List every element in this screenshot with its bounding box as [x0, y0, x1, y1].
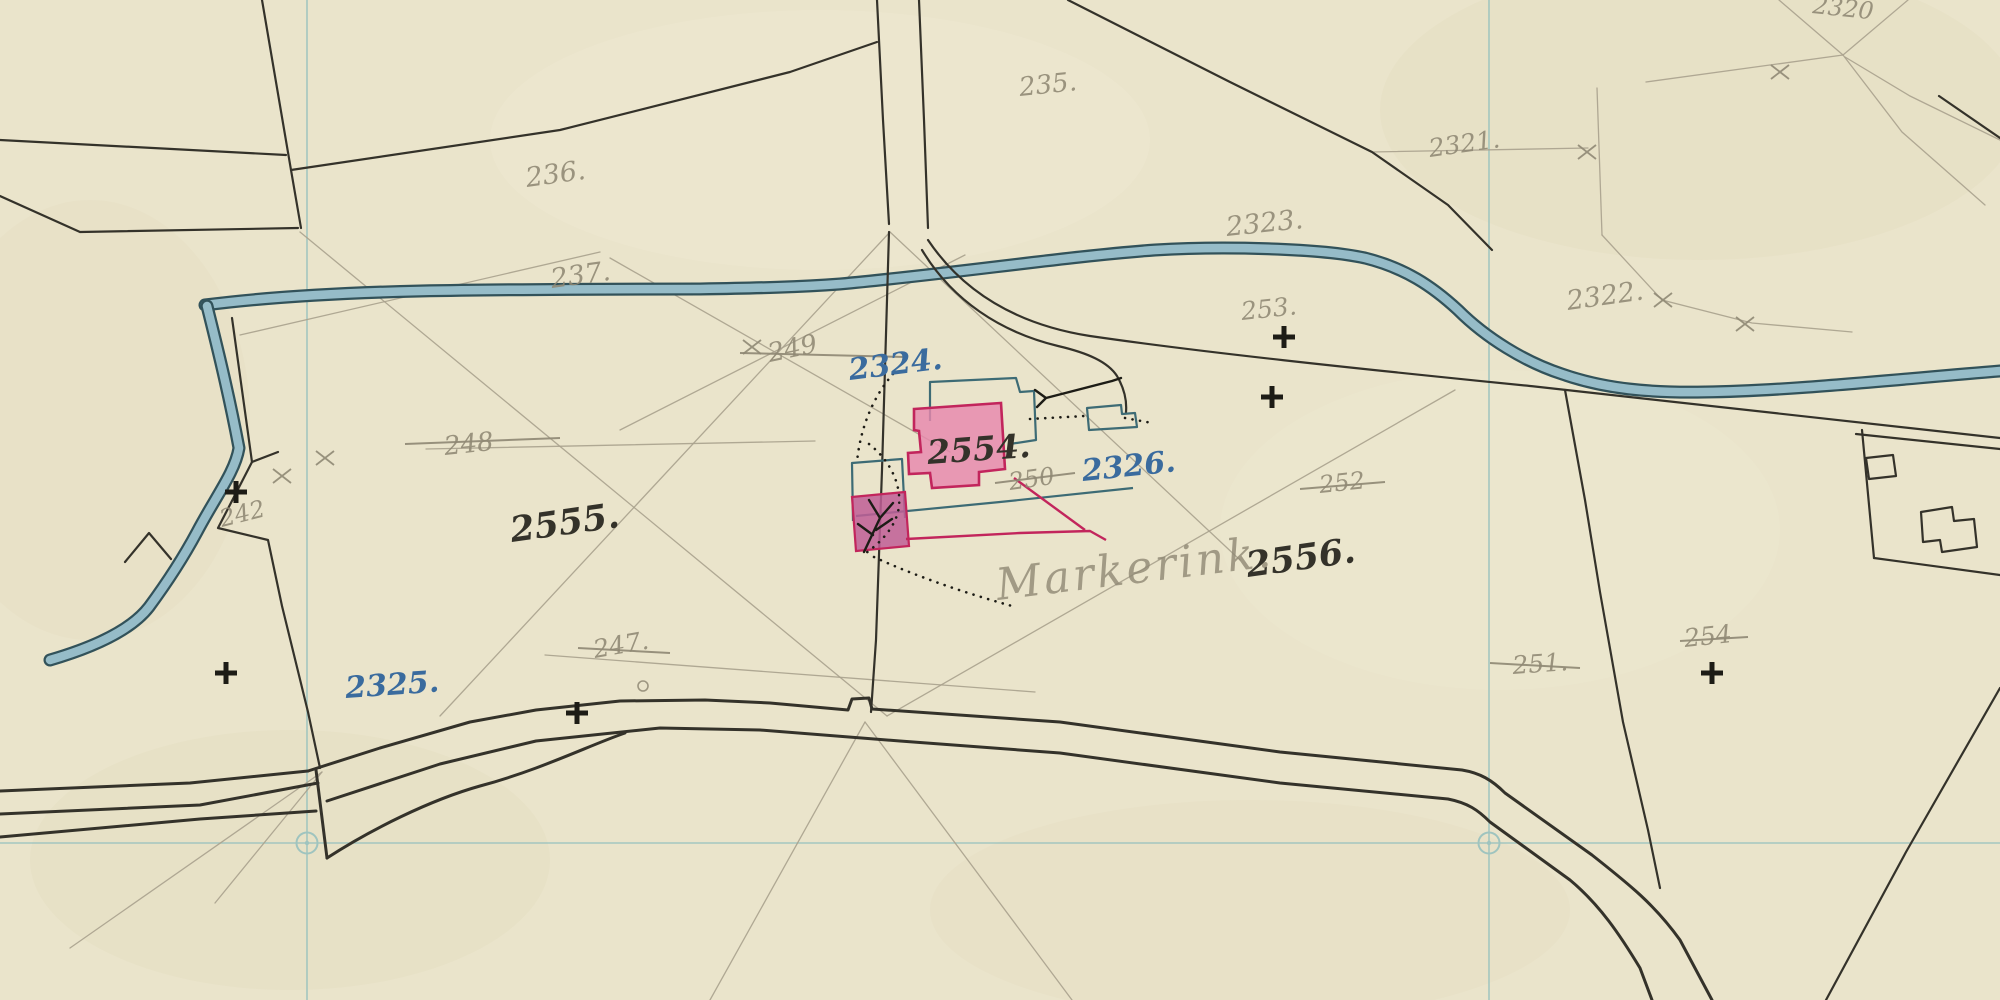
parcel-label-253: 253. [1239, 291, 1298, 326]
paper-highlight [490, 10, 1150, 270]
parcel-label-235: 235. [1017, 67, 1079, 103]
parcel-label-2325: 2325. [343, 665, 440, 707]
barn-building [852, 492, 909, 551]
parcel-label-252: 252 [1317, 466, 1366, 499]
parcel-label-248: 248 [442, 427, 495, 462]
paper-stain [30, 730, 550, 990]
map-canvas: 235.236.237.2321.2323.2322.253.249248250… [0, 0, 2000, 1000]
parcel-label-254: 254 [1682, 619, 1733, 653]
grid-circle-dot [305, 841, 309, 845]
grid-circle-dot [1487, 841, 1491, 845]
cadastral-map: 235.236.237.2321.2323.2322.253.249248250… [0, 0, 2000, 1000]
parcel-label-2554: 2554. [925, 426, 1032, 472]
parcel-label-251: 251. [1510, 647, 1569, 680]
